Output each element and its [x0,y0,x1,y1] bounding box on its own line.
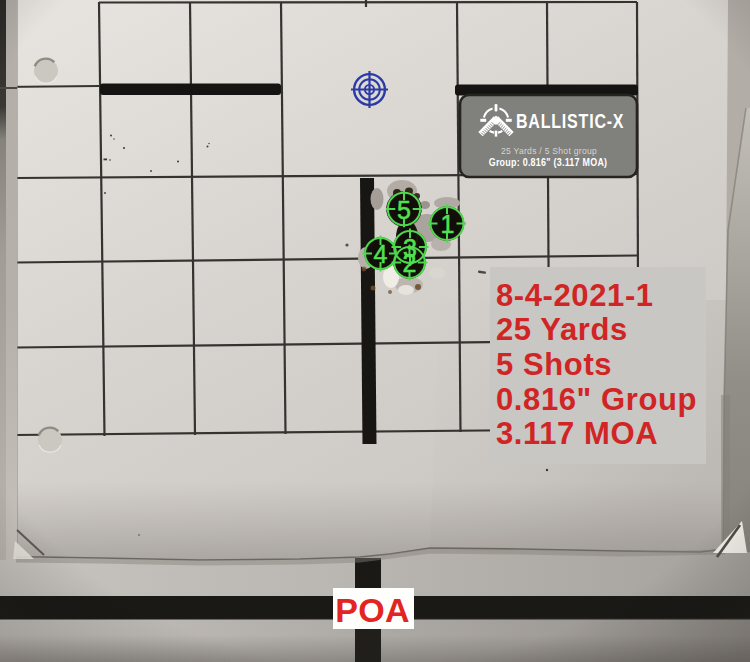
svg-text:POA: POA [335,591,409,629]
